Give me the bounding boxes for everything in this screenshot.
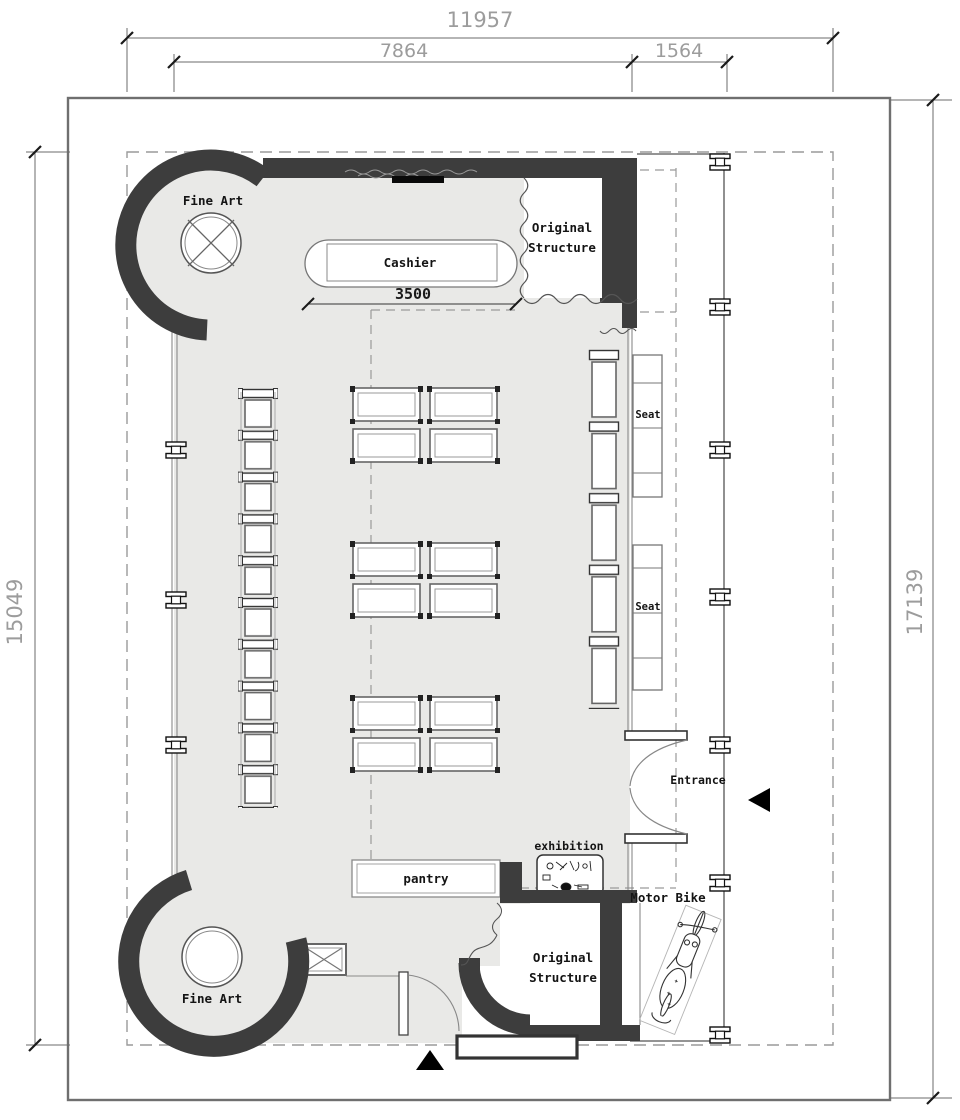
dim-main-width: 7864 [380,40,428,62]
dim-right-height: 17139 [903,569,927,636]
dim-overall-width: 11957 [447,8,514,32]
floor-plan: 11957 7864 1564 15049 17139 [0,0,960,1120]
motor-bike-label: Motor Bike [630,890,706,905]
exhibition-case [537,855,603,895]
wall-under-exhibition [507,890,637,903]
curved-wall-bottom-room [469,963,531,1025]
fine-art-top-label: Fine Art [183,193,243,208]
display-rack-right [588,349,620,709]
dim-side-width: 1564 [655,40,703,62]
original-structure-bottom-label-2: Structure [529,970,597,985]
dim-left-height: 15049 [3,579,27,646]
dimension-left [26,146,70,1051]
wall-room-right [600,903,622,1030]
seat-upper-label: Seat [635,409,660,421]
bench-upper [633,355,662,497]
cashier-label: Cashier [384,255,437,270]
original-structure-top-label-1: Original [532,220,592,235]
seat-lower-label: Seat [635,601,660,613]
dimension-ticks [121,32,839,68]
dim-cashier-width: 3500 [395,285,431,303]
exhibition-label: exhibition [534,839,603,853]
wall-top [263,158,637,178]
fine-art-column-top [181,213,241,273]
entry-arrow-right [748,788,770,812]
fine-art-bottom-label: Fine Art [182,991,242,1006]
entrance-label: Entrance [670,773,725,787]
bench-lower [633,545,662,690]
original-structure-bottom-label-1: Original [533,950,593,965]
entrance-doors [625,731,687,843]
fine-art-column-bottom [182,927,242,987]
dimension-top [121,28,839,92]
floor-plan-canvas: 11957 7864 1564 15049 17139 [0,0,960,1120]
display-rack-left [238,388,278,808]
wall-right-stub [622,300,637,328]
wall-right-upper [600,158,637,303]
motor-bike-drawing [639,904,721,1034]
entry-arrow-bottom [416,1050,444,1070]
original-structure-top-label-2: Structure [528,240,596,255]
entry-step [457,1036,577,1058]
pantry-label: pantry [403,871,449,886]
